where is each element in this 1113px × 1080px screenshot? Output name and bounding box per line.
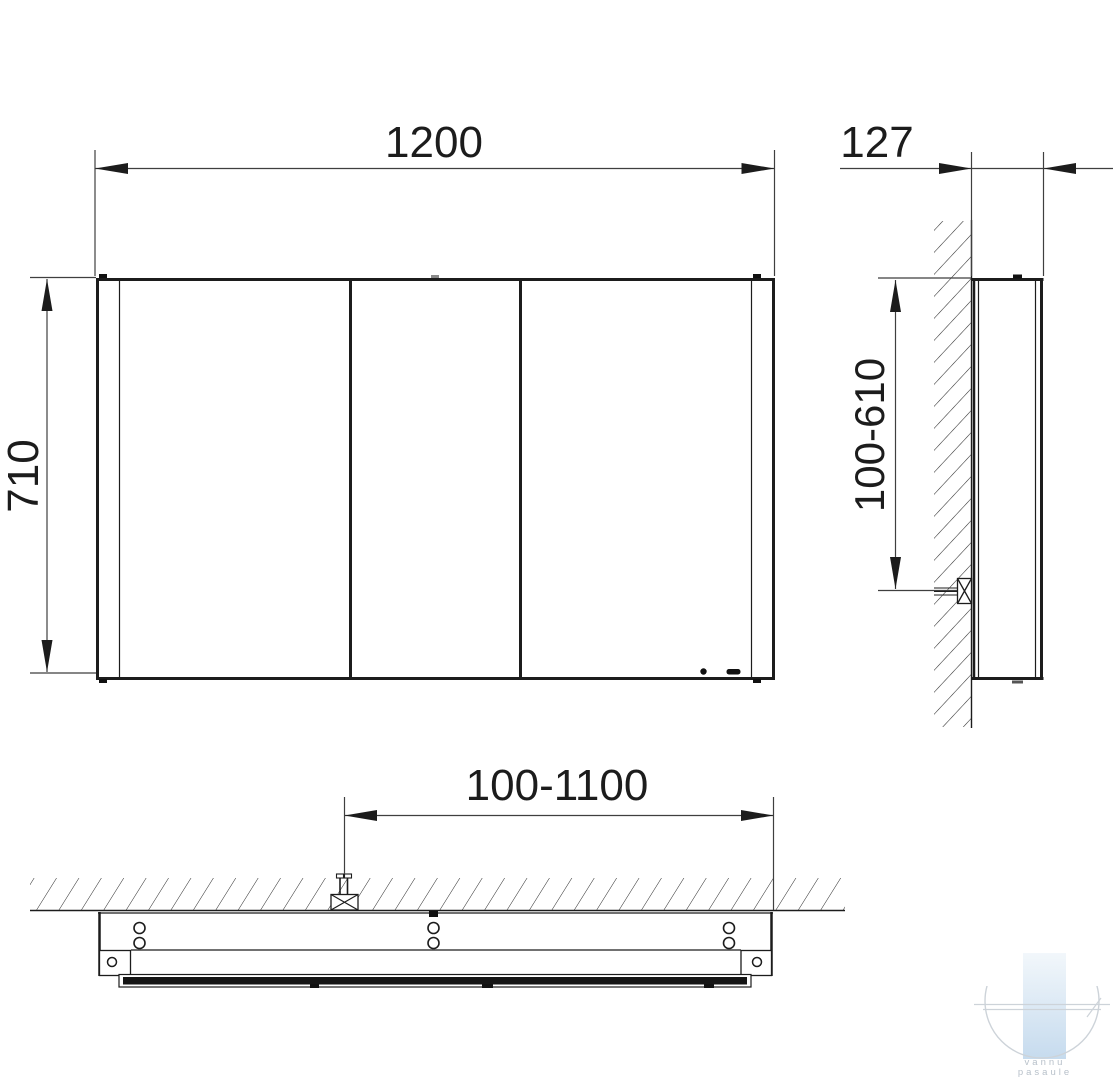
arrowhead-up-icon <box>42 279 53 311</box>
sensor-dot <box>700 668 706 674</box>
bottom-view <box>30 874 845 988</box>
top-mark-side <box>1013 275 1022 279</box>
screw-hole <box>724 923 735 934</box>
dimension-label-width: 1200 <box>385 118 483 167</box>
technical-drawing-canvas: vannu pasaule 1200 710 <box>0 0 1113 1080</box>
watermark-text-line2: pasaule <box>1018 1067 1072 1078</box>
dimension-width-1200: 1200 <box>95 118 775 276</box>
bottom-hinge-mark-left <box>99 679 107 683</box>
center-mark <box>429 911 438 917</box>
screw-hole <box>428 938 439 949</box>
wall-hatching-bottom <box>30 878 845 910</box>
dimension-label-mount-offset: 100-1100 <box>466 761 649 810</box>
hinge-hole <box>108 958 117 967</box>
mirror-door-edge-bar <box>123 977 747 985</box>
screw-hole <box>134 938 145 949</box>
hinge-left <box>100 951 131 976</box>
door-bar-tick <box>704 984 714 988</box>
technical-drawing-page: vannu pasaule 1200 710 <box>0 0 1113 1080</box>
bottom-mark-side <box>1012 681 1023 684</box>
front-view <box>96 274 775 683</box>
door-bar-tick <box>310 984 319 988</box>
front-view-body <box>96 278 775 680</box>
side-view <box>934 220 1044 728</box>
brand-logo-mark <box>727 669 741 675</box>
screw-hole <box>724 938 735 949</box>
arrowhead-down-icon <box>42 640 53 672</box>
arrowhead-right-icon <box>741 810 774 821</box>
screw-head <box>345 874 352 878</box>
wall-hatching-side <box>934 221 971 727</box>
arrowhead-left-icon <box>1044 163 1077 174</box>
screw-hole <box>134 923 145 934</box>
bottom-hinge-mark-right <box>753 679 761 683</box>
top-hinge-mark-left <box>99 274 107 278</box>
watermark-bar <box>1023 953 1066 1059</box>
door-bar-tick <box>482 984 493 988</box>
arrowhead-down-icon <box>890 557 901 589</box>
hinge-hole <box>753 958 762 967</box>
top-hinge-mark-right <box>753 274 761 278</box>
dimension-label-mount-height: 100-610 <box>846 358 893 512</box>
side-body-fill <box>973 277 1044 680</box>
dimension-label-height: 710 <box>0 439 48 512</box>
arrowhead-up-icon <box>890 280 901 312</box>
arrowhead-left-icon <box>95 163 128 174</box>
top-mark-center <box>431 275 439 278</box>
screw-hole <box>428 923 439 934</box>
watermark-logo: vannu pasaule <box>974 944 1110 1078</box>
screw-head <box>337 874 344 878</box>
arrowhead-left-icon <box>345 810 378 821</box>
arrowhead-right-icon <box>742 163 775 174</box>
dimension-label-depth: 127 <box>840 118 913 167</box>
hinge-right <box>741 951 772 976</box>
arrowhead-right-icon <box>939 163 972 174</box>
dimension-depth-127: 127 <box>840 118 1113 276</box>
dimension-height-710: 710 <box>0 278 96 674</box>
